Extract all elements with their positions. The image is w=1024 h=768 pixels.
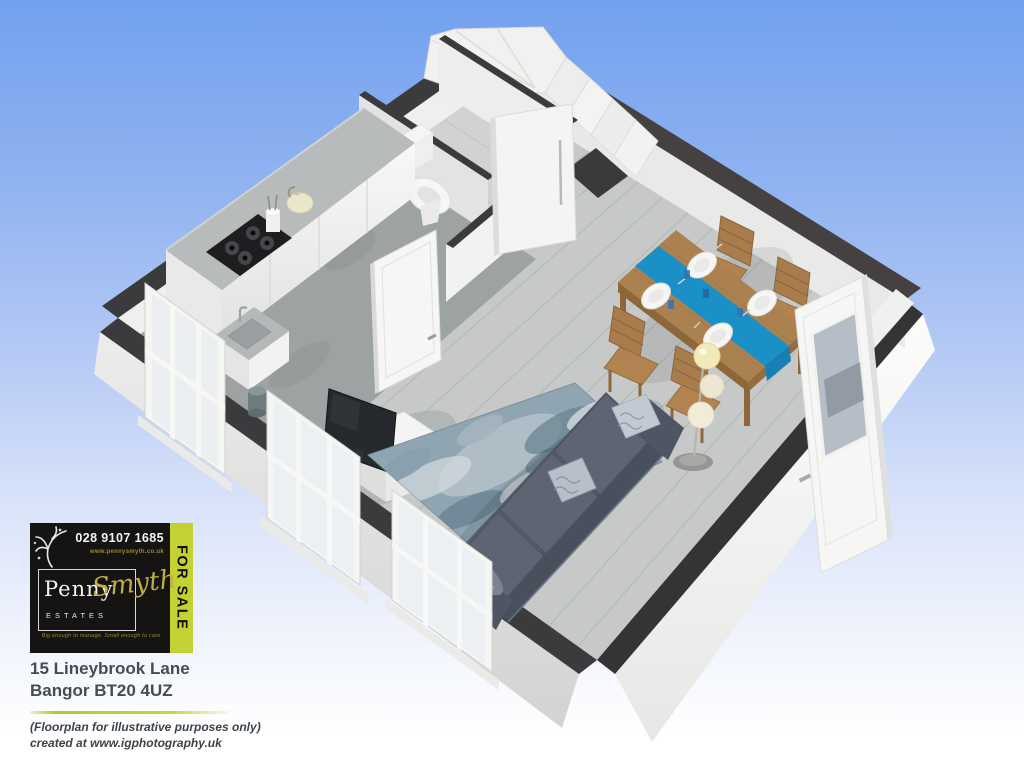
floorplan-page: 028 9107 1685 www.pennysmyth.co.uk Penny… — [0, 0, 1024, 768]
sale-board: 028 9107 1685 www.pennysmyth.co.uk Penny… — [30, 523, 193, 653]
property-address: 15 Lineybrook Lane Bangor BT20 4UZ — [30, 658, 190, 702]
waste-bin — [248, 387, 266, 418]
glazed-exterior-door — [795, 274, 914, 573]
hall-door — [490, 104, 576, 256]
address-line2: Bangor BT20 4UZ — [30, 680, 190, 702]
sale-board-logo: 028 9107 1685 www.pennysmyth.co.uk Penny… — [30, 523, 170, 653]
address-line1: 15 Lineybrook Lane — [30, 658, 190, 680]
agent-phone: 028 9107 1685 — [75, 531, 164, 545]
agent-website: www.pennysmyth.co.uk — [90, 549, 164, 555]
disclaimer-line2: created at www.igphotography.uk — [30, 735, 261, 751]
disclaimer: (Floorplan for illustrative purposes onl… — [30, 719, 261, 751]
brand-suffix: ESTATES — [46, 611, 107, 620]
accent-rule — [30, 711, 230, 714]
disclaimer-line1: (Floorplan for illustrative purposes onl… — [30, 719, 261, 735]
brand-tagline: Big enough to manage. Small enough to ca… — [36, 633, 166, 639]
